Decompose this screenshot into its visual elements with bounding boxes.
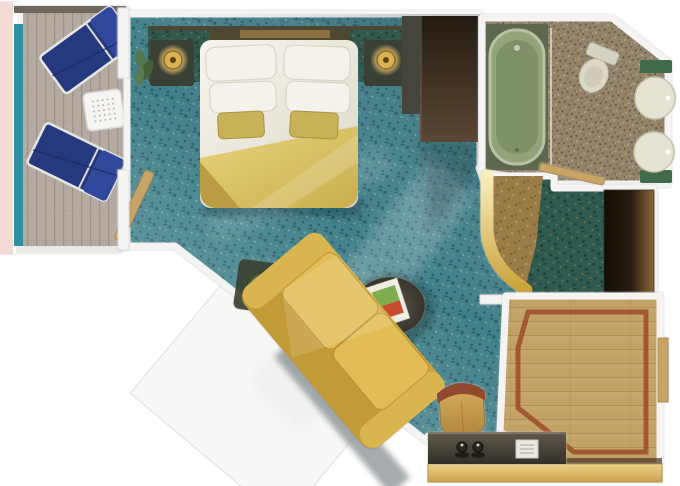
- tub-faucet: [514, 45, 520, 51]
- vanity-desk: [428, 432, 566, 464]
- side-door: [658, 338, 668, 402]
- faucet-lower: [666, 150, 671, 155]
- ship-hull-edge: [0, 2, 13, 254]
- faucet-upper: [666, 96, 671, 101]
- desk-chair: [436, 381, 487, 435]
- hallway-wardrobe: [604, 190, 654, 302]
- sink-lower: [634, 132, 674, 172]
- notepad: [516, 440, 538, 458]
- bathtub: [490, 30, 544, 164]
- entry-threshold: [428, 464, 662, 482]
- floor-plan-svg: [0, 0, 680, 486]
- balcony-bottom-wall: [16, 246, 122, 253]
- patio-table: [83, 89, 126, 132]
- stateroom-floor-plan: [0, 0, 680, 486]
- sink-upper: [635, 77, 675, 119]
- headboard-gold-trim: [240, 30, 330, 38]
- counter-highlight: [428, 432, 566, 434]
- king-bed: [200, 40, 358, 208]
- tub-drain: [515, 148, 519, 152]
- table-lamp-left: [157, 44, 189, 76]
- balcony-wall-upper: [118, 8, 129, 78]
- wardrobe-side-panel: [402, 16, 420, 114]
- bathroom: [482, 18, 675, 184]
- balcony-railing: [14, 24, 23, 246]
- table-lamp-right: [370, 44, 402, 76]
- tall-wardrobe: [420, 16, 478, 142]
- balcony: [0, 2, 137, 254]
- balcony-wall-lower: [118, 170, 129, 250]
